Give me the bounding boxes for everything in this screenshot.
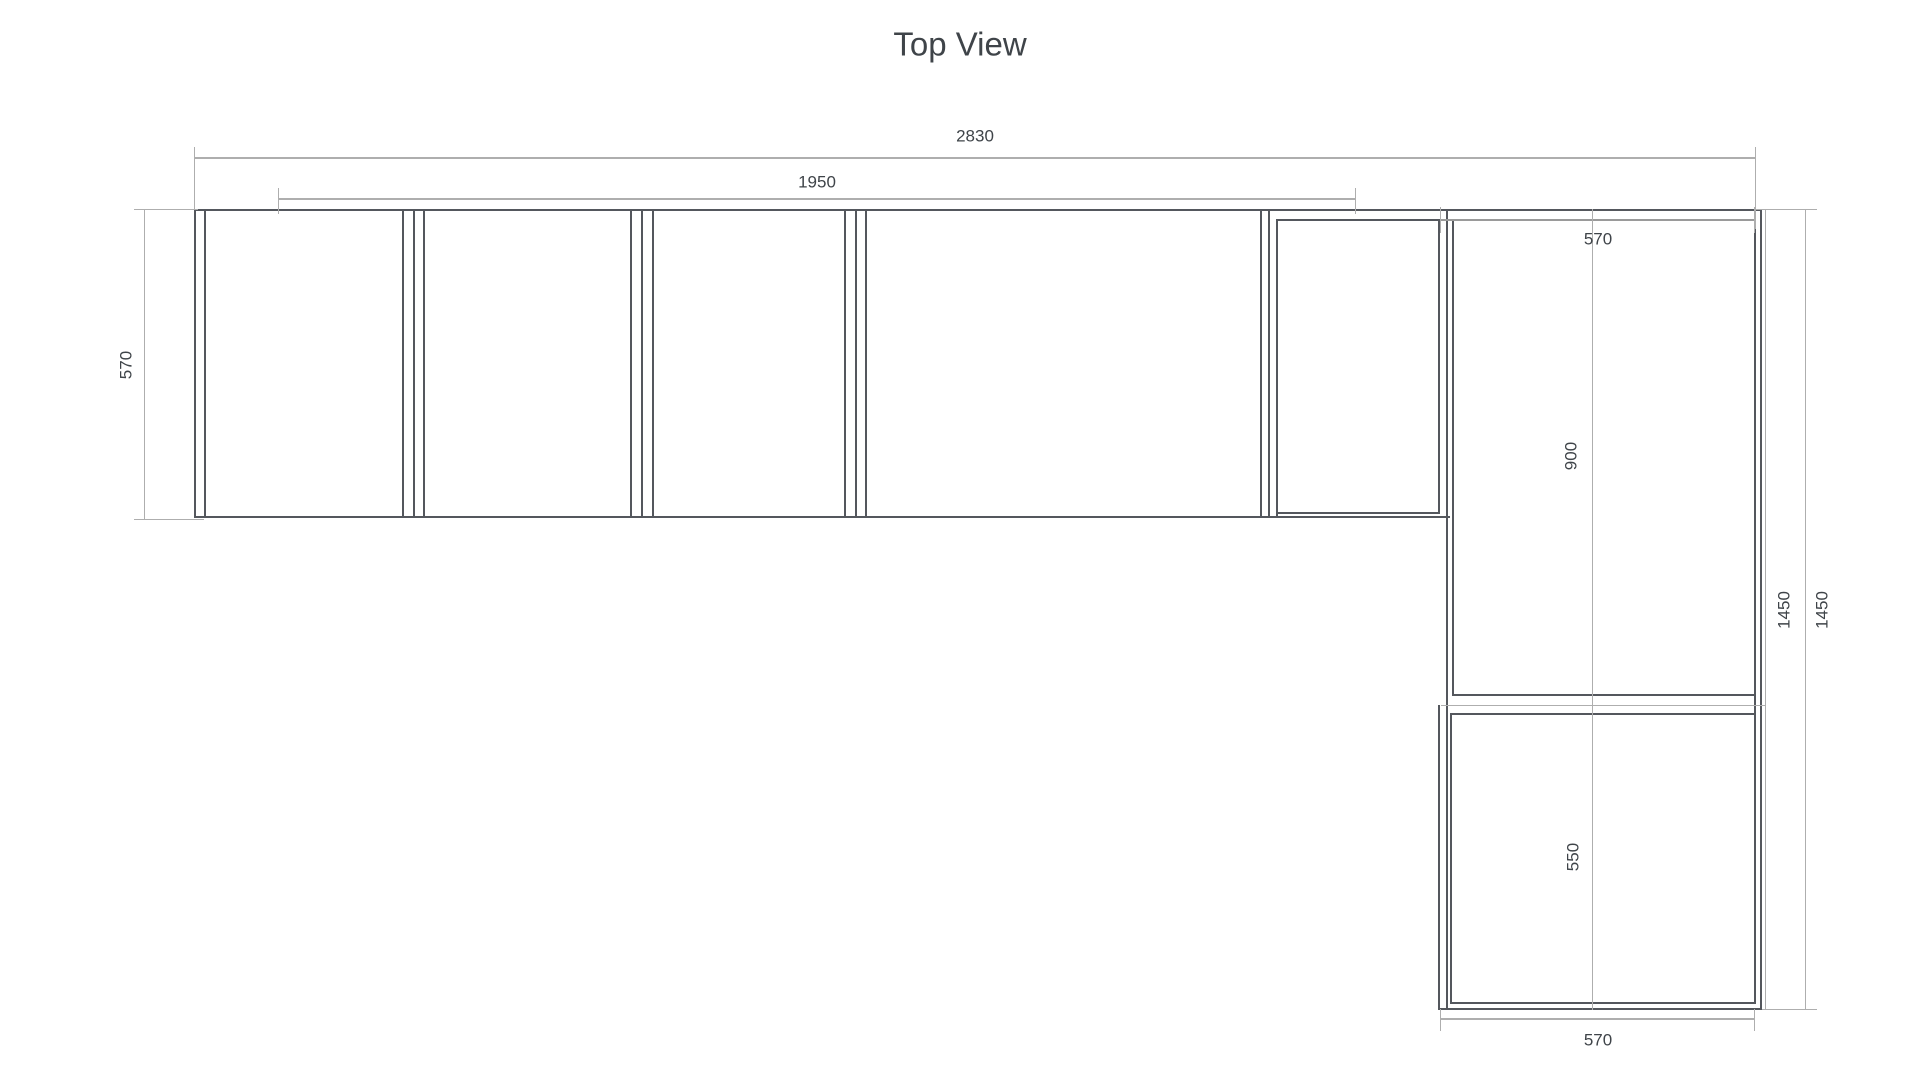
dimension-line-570-left bbox=[144, 210, 145, 520]
right-column-right-inner bbox=[1754, 219, 1756, 1004]
cabinet-separator-line bbox=[641, 209, 643, 518]
dimension-line-2830 bbox=[194, 157, 1756, 159]
corner-cabinet-bottom-inner bbox=[1276, 512, 1440, 514]
corner-cabinet-right-inner bbox=[1438, 219, 1440, 514]
dimension-label-right-width-bottom: 570 bbox=[1584, 1032, 1612, 1049]
lower-right-cabinet-left-inner bbox=[1450, 713, 1452, 1004]
dimension-label-upper-section: 900 bbox=[1563, 442, 1580, 470]
cabinet-left-wall-outer bbox=[194, 209, 196, 518]
dimension-line-570-bottom bbox=[1441, 1018, 1755, 1020]
upper-right-cabinet-left-inner bbox=[1452, 219, 1454, 696]
dimension-label-run-width: 1950 bbox=[798, 174, 836, 191]
cabinet-separator-line bbox=[844, 209, 846, 518]
dimension-label-left-depth: 570 bbox=[118, 351, 135, 379]
dimension-tick bbox=[278, 188, 279, 214]
top-view-drawing: Top View bbox=[0, 0, 1920, 1080]
lower-right-cabinet-left-outer bbox=[1438, 705, 1440, 1010]
upper-right-cabinet-bottom bbox=[1452, 694, 1756, 696]
lower-right-cabinet-bottom-inner bbox=[1450, 1002, 1756, 1004]
corner-cabinet-left-inner bbox=[1276, 219, 1278, 518]
dimension-line-1450-a bbox=[1765, 209, 1766, 1010]
right-column-bottom-outer bbox=[1438, 1008, 1762, 1010]
dimension-tick bbox=[1755, 147, 1756, 229]
dimension-line-900-550-chain bbox=[1592, 209, 1593, 1010]
cabinet-separator-line bbox=[865, 209, 867, 518]
dimension-tick bbox=[1355, 188, 1356, 214]
dimension-line-1950 bbox=[279, 198, 1356, 200]
lower-right-cabinet-top bbox=[1450, 713, 1756, 715]
dimension-tick bbox=[134, 209, 198, 210]
dimension-tick bbox=[1440, 1009, 1441, 1031]
dimension-divider-900-550 bbox=[1441, 705, 1766, 706]
dimension-tick bbox=[1754, 1009, 1755, 1031]
dimension-label-overall-width: 2830 bbox=[956, 128, 994, 145]
dimension-label-lower-section: 550 bbox=[1565, 843, 1582, 871]
dimension-line-570-top-right bbox=[1441, 219, 1755, 221]
dimension-tick bbox=[134, 519, 204, 520]
cabinet-left-wall-inner bbox=[204, 209, 206, 518]
right-column-left-outer bbox=[1446, 209, 1448, 1010]
dimension-tick bbox=[194, 147, 195, 210]
cabinet-separator-line bbox=[1268, 211, 1270, 518]
corner-cabinet-top-inner bbox=[1276, 219, 1440, 221]
page-title: Top View bbox=[893, 28, 1026, 61]
dimension-line-1450-b bbox=[1805, 209, 1806, 1010]
right-column-right-outer bbox=[1760, 209, 1762, 1010]
dimension-tick bbox=[1440, 207, 1441, 233]
cabinet-separator-line bbox=[413, 209, 415, 518]
cabinet-separator-line bbox=[652, 209, 654, 518]
dimension-extension-top bbox=[1755, 209, 1817, 210]
dimension-tick bbox=[1754, 207, 1755, 233]
cabinet-separator-line bbox=[630, 209, 632, 518]
cabinet-separator-line bbox=[1260, 209, 1262, 518]
cabinet-separator-line bbox=[402, 209, 404, 518]
dimension-label-total-height-b: 1450 bbox=[1814, 591, 1831, 629]
cabinet-separator-line bbox=[855, 209, 857, 518]
dimension-extension-bottom bbox=[1762, 1009, 1817, 1010]
cabinet-row-top-edge bbox=[194, 209, 1762, 211]
dimension-label-total-height-a: 1450 bbox=[1776, 591, 1793, 629]
cabinet-separator-line bbox=[423, 209, 425, 518]
dimension-label-right-width-top: 570 bbox=[1584, 231, 1612, 248]
